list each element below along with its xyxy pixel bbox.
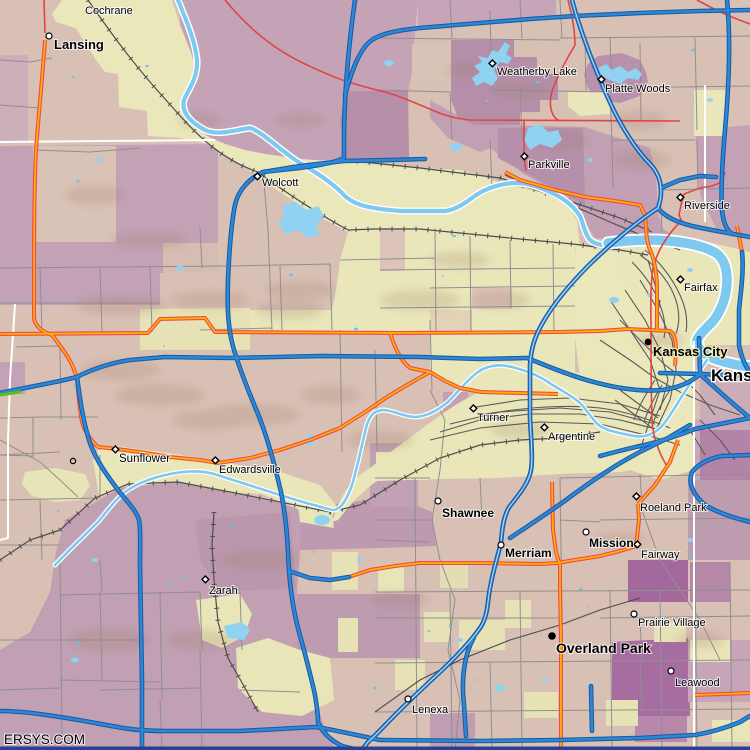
svg-text:Fairway: Fairway	[641, 549, 680, 561]
svg-text:Fairfax: Fairfax	[684, 282, 718, 294]
svg-text:Sunflower: Sunflower	[119, 453, 170, 465]
svg-text:Weatherby Lake: Weatherby Lake	[497, 66, 577, 78]
svg-text:Prairie Village: Prairie Village	[638, 617, 706, 629]
svg-text:Roeland Park: Roeland Park	[640, 502, 707, 514]
svg-text:Lansing: Lansing	[54, 37, 104, 52]
svg-text:Kansas City: Kansas City	[653, 344, 728, 359]
svg-text:Riverside: Riverside	[684, 200, 730, 212]
svg-text:Merriam: Merriam	[505, 546, 552, 560]
svg-text:Parkville: Parkville	[528, 159, 570, 171]
svg-text:Cochrane: Cochrane	[85, 5, 133, 17]
svg-text:Mission: Mission	[589, 536, 634, 550]
svg-text:Shawnee: Shawnee	[442, 506, 494, 520]
svg-text:Wolcott: Wolcott	[262, 177, 298, 189]
svg-text:Overland Park: Overland Park	[556, 640, 651, 656]
svg-text:Edwardsville: Edwardsville	[219, 464, 281, 476]
svg-text:Zarah: Zarah	[209, 585, 238, 597]
svg-text:Kansas: Kansas	[711, 366, 750, 385]
svg-text:Lenexa: Lenexa	[412, 704, 449, 716]
svg-text:Platte Woods: Platte Woods	[605, 83, 671, 95]
svg-text:Argentine: Argentine	[548, 431, 595, 443]
svg-text:ERSYS.COM: ERSYS.COM	[4, 732, 85, 747]
svg-text:Turner: Turner	[477, 412, 509, 424]
svg-text:Leawood: Leawood	[675, 677, 720, 689]
